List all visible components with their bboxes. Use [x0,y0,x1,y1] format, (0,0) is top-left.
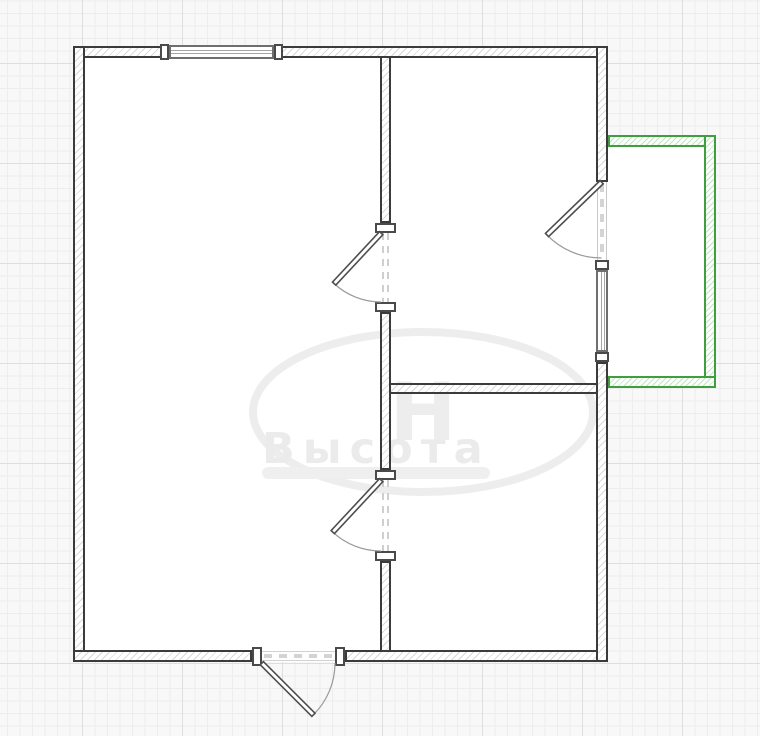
door-entry-arc[interactable] [314,663,335,715]
door-interior-1-arc[interactable] [334,284,381,303]
door-interior-1-leaf[interactable] [332,232,382,286]
door-interior-2-arc[interactable] [333,532,381,551]
door-interior-2-leaf[interactable] [331,479,383,534]
door-balcony-leaf[interactable] [545,181,603,237]
door-entry-leaf[interactable] [260,662,315,717]
door-balcony-arc[interactable] [547,235,602,258]
floor-plan-canvas[interactable]: Н Высота [0,0,760,736]
doors-layer [0,0,760,736]
